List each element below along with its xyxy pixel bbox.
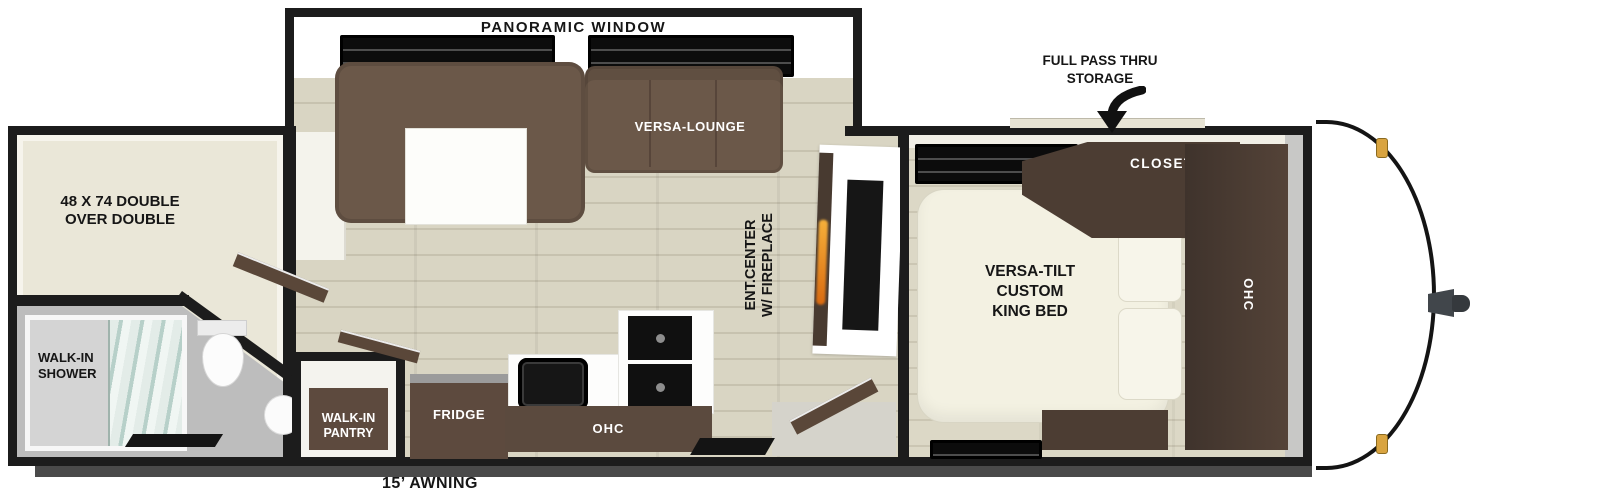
full-pass-thru-label-line1: FULL PASS THRU: [990, 52, 1210, 70]
chaise-table: [405, 128, 527, 225]
versa-lounge-label: VERSA-LOUNGE: [600, 119, 780, 135]
awning-label: 15’ AWNING: [340, 474, 520, 493]
walk-in-shower-label-line1: WALK-IN: [38, 350, 124, 366]
bedroom-ohc-label: OHC: [1216, 245, 1256, 345]
ent-center-label-line2: W/ FIREPLACE: [760, 180, 777, 350]
walk-in-shower: WALK-IN SHOWER: [25, 315, 187, 451]
drawer-knob: [656, 383, 665, 392]
ent-center-label-line1: ENT.CENTER: [743, 180, 760, 350]
king-bed-label-line3: KING BED: [930, 302, 1130, 322]
walk-in-pantry-label: WALK-IN PANTRY: [301, 411, 396, 441]
bed-foot-bench: [1042, 410, 1168, 450]
range-drawer-lower: [628, 364, 692, 410]
bath-mat: [125, 434, 223, 447]
king-bed-label-line2: CUSTOM: [930, 282, 1130, 302]
bunk-bath-section: 48 X 74 DOUBLE OVER DOUBLE WALK-IN SHOWE…: [8, 126, 292, 466]
hitch-ball: [1452, 295, 1470, 312]
fridge-top: [410, 374, 508, 383]
marker-light-top: [1376, 138, 1388, 158]
walk-in-shower-label: WALK-IN SHOWER: [38, 350, 124, 381]
kitchen-ohc: OHC: [505, 406, 712, 452]
fridge-label: FRIDGE: [410, 407, 508, 423]
ent-center-label: ENT.CENTER W/ FIREPLACE: [743, 180, 787, 350]
front-cap: [1316, 120, 1436, 470]
floorplan-canvas: PANORAMIC WINDOW 48 X 74 DOUBLE OVER DOU…: [0, 0, 1600, 495]
walk-in-pantry-label-line1: WALK-IN: [301, 411, 396, 426]
bunk-bed-label: 48 X 74 DOUBLE OVER DOUBLE: [17, 193, 223, 229]
bunk-bed-label-line1: 48 X 74 DOUBLE: [17, 193, 223, 211]
fridge: FRIDGE: [410, 374, 508, 459]
walk-in-pantry-label-line2: PANTRY: [301, 426, 396, 441]
shower-glass-door: [108, 320, 182, 446]
kitchen-sink: [518, 358, 588, 410]
full-pass-thru-label: FULL PASS THRU STORAGE: [990, 52, 1210, 87]
entry-step: [690, 438, 775, 455]
kitchen-ohc-label: OHC: [505, 421, 712, 437]
walk-in-shower-label-line2: SHOWER: [38, 366, 124, 382]
range-drawer-upper: [628, 316, 692, 360]
full-pass-thru-label-line2: STORAGE: [990, 70, 1210, 88]
marker-light-bottom: [1376, 434, 1388, 454]
walk-in-pantry-room: WALK-IN PANTRY: [292, 352, 405, 466]
king-bed-label: VERSA-TILT CUSTOM KING BED: [930, 262, 1130, 322]
drawer-knob: [656, 334, 665, 343]
king-bed-label-line1: VERSA-TILT: [930, 262, 1130, 282]
tv-panel: [842, 180, 883, 331]
entertainment-center: [812, 145, 903, 357]
bunk-bed-label-line2: OVER DOUBLE: [17, 211, 223, 229]
pass-thru-arrow-icon: [1090, 86, 1146, 134]
interior-wall: [17, 295, 189, 306]
bedroom-window-bottom: [930, 440, 1042, 459]
